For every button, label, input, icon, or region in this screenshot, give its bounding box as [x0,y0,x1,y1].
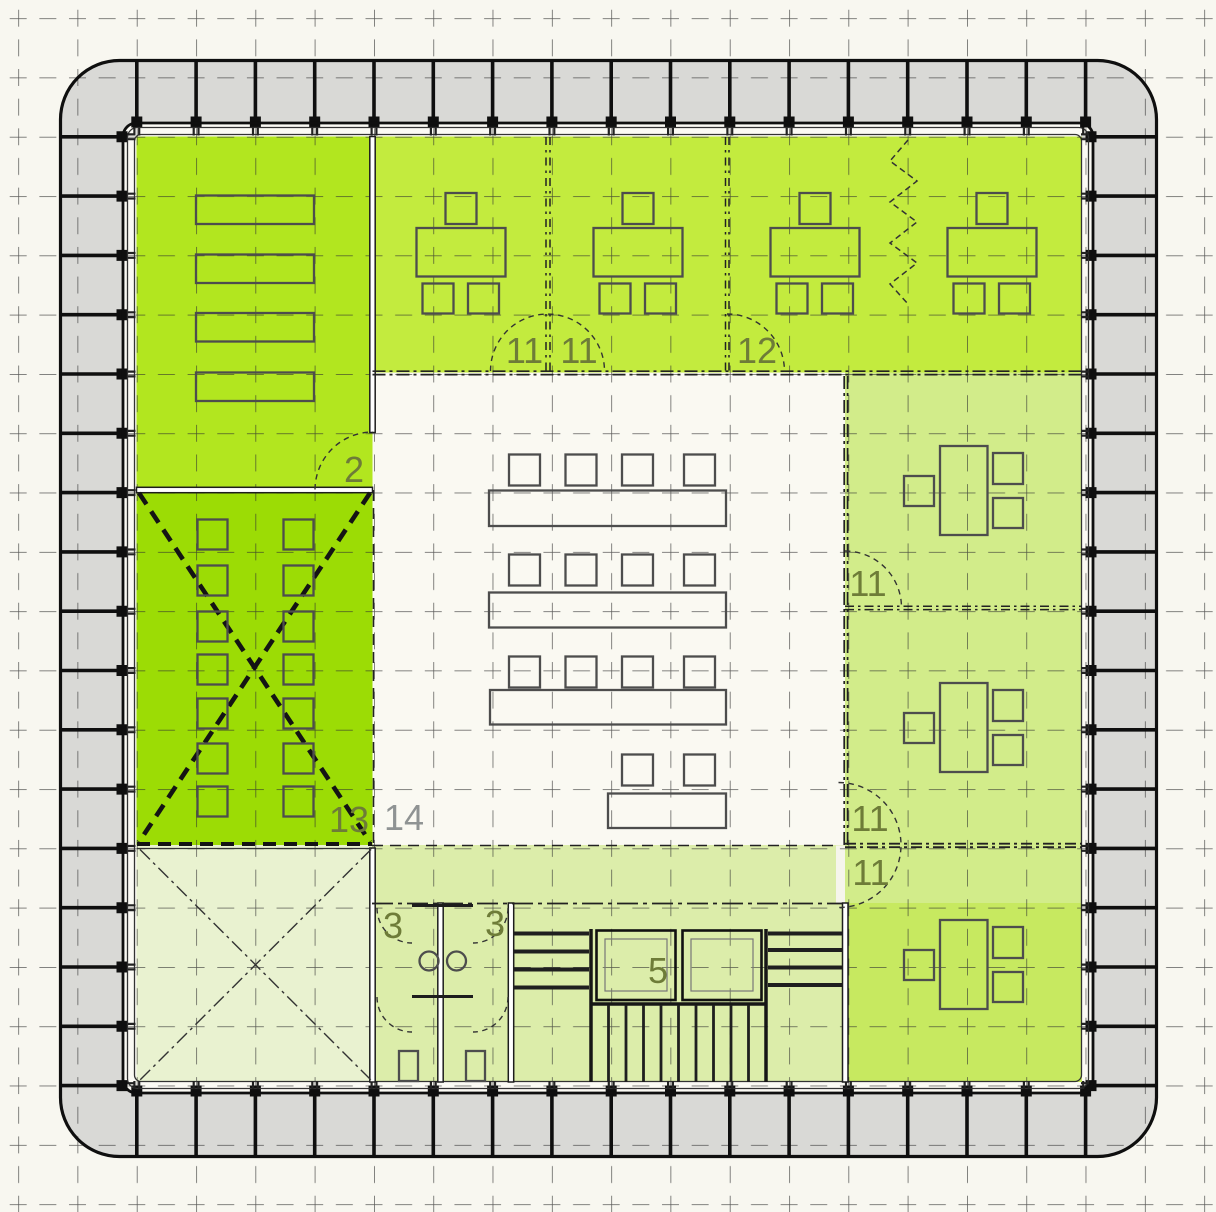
wall-core-west [508,903,513,1082]
wall-northwest-room-east [370,137,375,433]
wall-lounge-east [370,848,375,1082]
wall-meeting-room-north [137,487,373,492]
wall-core-east [843,903,849,1082]
wall-wc-divider [438,903,443,1082]
room-label-11-east-a: 11 [851,798,888,839]
room-label-11-east-b: 11 [852,852,889,893]
room-label-14: 14 [384,797,424,838]
room-label-13: 13 [329,799,369,840]
room-label-11-north-a: 11 [506,330,543,371]
room-label-12: 12 [737,330,777,371]
room-label-3-wc-b: 3 [485,903,505,944]
floor-plan-drawing: 11 11 12 2 11 13 14 11 11 3 3 5 [0,0,1216,1212]
room-label-11-north-b: 11 [560,330,597,371]
room-label-11-east-mid: 11 [849,563,886,604]
room-label-3-wc-a: 3 [383,905,403,946]
floor-plan-canvas: 11 11 12 2 11 13 14 11 11 3 3 5 [0,0,1216,1212]
room-label-5-lift: 5 [648,950,668,991]
room-label-2: 2 [344,449,364,490]
